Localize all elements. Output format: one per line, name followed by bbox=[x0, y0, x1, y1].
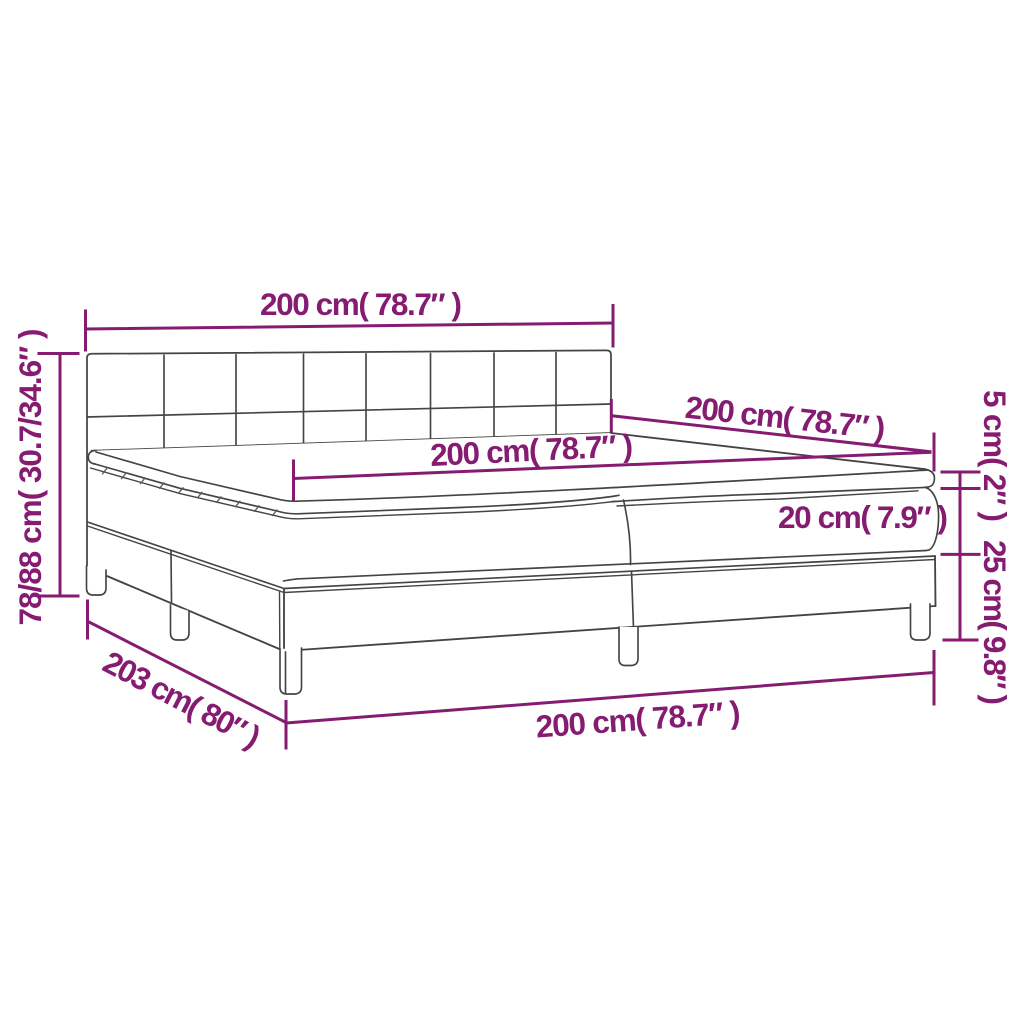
svg-text:200 cm( 78.7″ ): 200 cm( 78.7″ ) bbox=[260, 286, 462, 322]
svg-text:25 cm( 9.8″ ): 25 cm( 9.8″ ) bbox=[977, 540, 1013, 705]
svg-text:5 cm( 2″ ): 5 cm( 2″ ) bbox=[977, 390, 1013, 522]
svg-text:20 cm( 7.9″ ): 20 cm( 7.9″ ) bbox=[778, 499, 948, 535]
svg-text:78/88 cm( 30.7/34.6″ ): 78/88 cm( 30.7/34.6″ ) bbox=[12, 329, 48, 626]
